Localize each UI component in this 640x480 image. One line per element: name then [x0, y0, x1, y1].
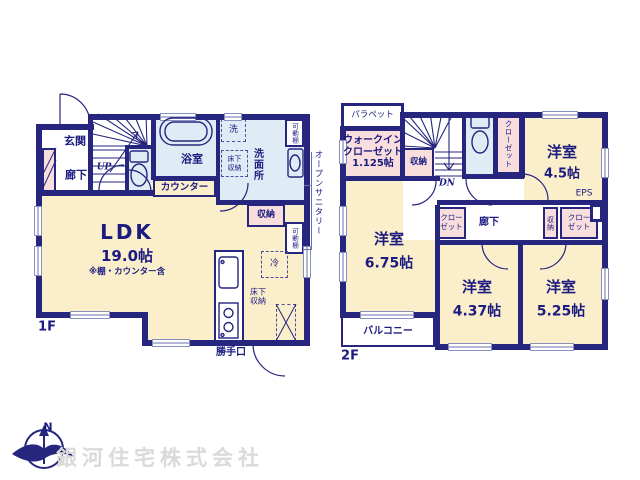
kitchen-sink-icon — [219, 257, 238, 288]
company-watermark: 銀河住宅株式会社 — [56, 442, 264, 472]
fixtures-layer — [0, 0, 640, 480]
toilet-icon — [130, 151, 148, 186]
stairs-down-icon — [403, 112, 463, 176]
toilet-icon — [471, 117, 489, 153]
hatch-lines — [42, 148, 296, 341]
washbasin-icon — [288, 149, 303, 177]
stove-icon — [219, 303, 238, 338]
floorplan-canvas: カウンター 収納 可動棚 可動棚 洗 床下収納 冷 — [0, 0, 640, 480]
bathtub-icon — [160, 118, 212, 145]
compass-north-label: N — [43, 422, 52, 435]
